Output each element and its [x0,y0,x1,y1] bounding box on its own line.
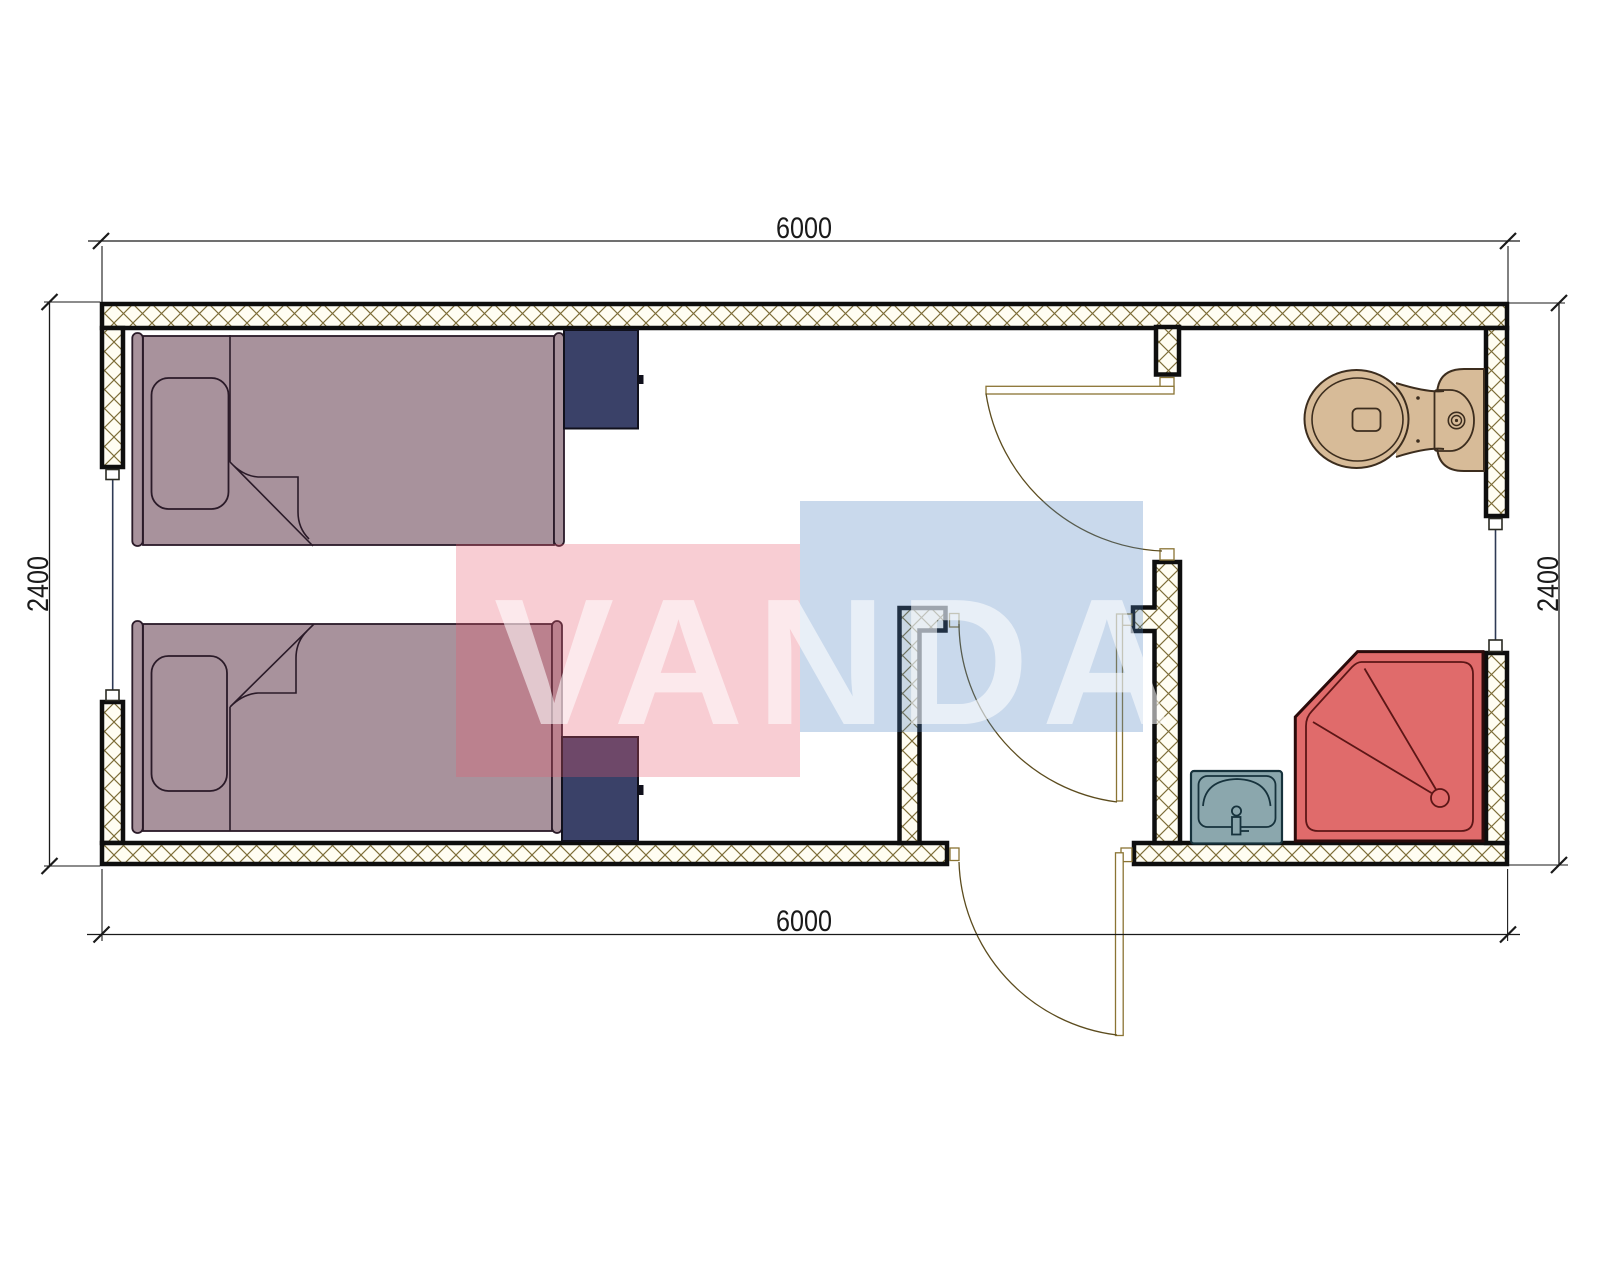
svg-text:2400: 2400 [1532,556,1565,612]
svg-text:6000: 6000 [776,905,832,938]
svg-text:2400: 2400 [22,556,55,612]
svg-text:6000: 6000 [776,212,832,245]
svg-text:VANDA: VANDA [494,562,1185,763]
